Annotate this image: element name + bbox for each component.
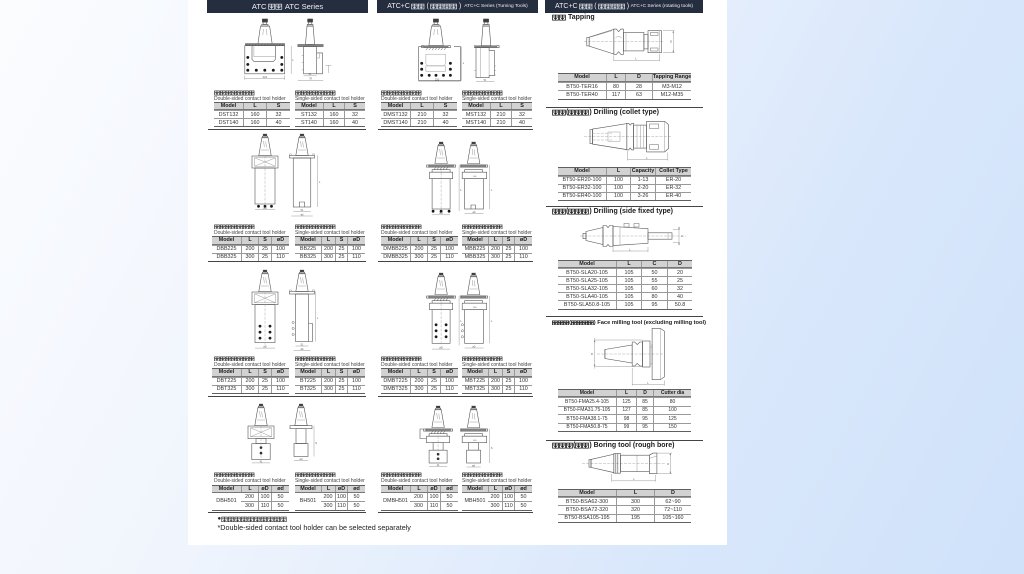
svg-text:L: L: [463, 61, 465, 65]
svg-text:L: L: [647, 381, 649, 385]
svg-text:L: L: [635, 57, 637, 61]
svg-text:D: D: [670, 40, 672, 44]
svg-text:øD: øD: [439, 346, 443, 349]
svg-text:øD: øD: [439, 212, 443, 215]
svg-text:L: L: [633, 477, 635, 481]
svg-text:L: L: [319, 180, 321, 184]
svg-text:D: D: [591, 352, 593, 356]
svg-text:L: L: [629, 247, 631, 251]
svg-text:S: S: [491, 446, 493, 450]
svg-text:L: L: [491, 319, 493, 323]
svg-text:L: L: [491, 188, 493, 192]
svg-text:L: L: [646, 156, 648, 160]
svg-text:øD: øD: [263, 207, 267, 210]
svg-text:L: L: [292, 58, 294, 62]
svg-text:100: 100: [473, 176, 477, 178]
svg-text:øD: øD: [263, 345, 267, 348]
svg-text:D: D: [667, 462, 669, 466]
svg-text:ø: ø: [681, 235, 683, 238]
svg-text:224: 224: [263, 75, 268, 79]
svg-text:100: 100: [473, 440, 477, 442]
svg-text:100: 100: [473, 307, 477, 309]
svg-text:S: S: [315, 441, 317, 445]
svg-text:220: 220: [435, 78, 440, 82]
svg-text:L: L: [317, 316, 319, 320]
